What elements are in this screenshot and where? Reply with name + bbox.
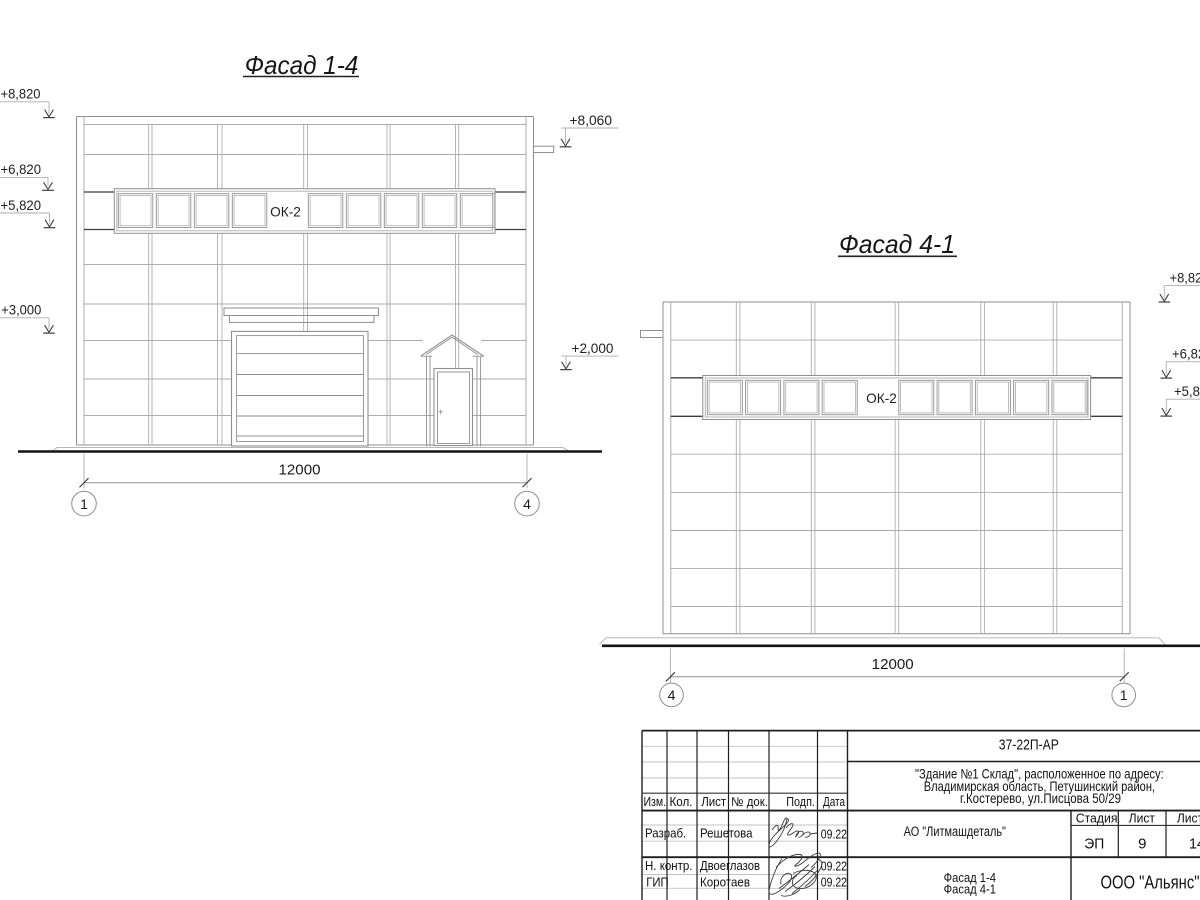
svg-text:Дата: Дата — [823, 794, 846, 809]
svg-text:Изм.: Изм. — [643, 794, 666, 809]
svg-text:1: 1 — [80, 496, 88, 512]
svg-text:4: 4 — [523, 496, 531, 512]
svg-text:ОК-2: ОК-2 — [270, 205, 301, 220]
svg-text:14: 14 — [1189, 835, 1200, 852]
svg-text:+3,000: +3,000 — [1, 302, 41, 318]
svg-text:Лист: Лист — [1129, 810, 1155, 825]
svg-text:1: 1 — [1120, 687, 1128, 703]
svg-text:№ док.: № док. — [731, 794, 768, 809]
svg-text:+8,820: +8,820 — [1, 86, 41, 102]
svg-text:Кол.: Кол. — [670, 794, 693, 809]
svg-text:ЭП: ЭП — [1084, 835, 1104, 852]
svg-text:Лист: Лист — [701, 794, 726, 809]
svg-text:АО "Литмашдеталь": АО "Литмашдеталь" — [904, 824, 1006, 839]
svg-text:09.22: 09.22 — [821, 875, 847, 890]
svg-text:Разраб.: Разраб. — [645, 826, 686, 841]
svg-text:Коротаев: Коротаев — [700, 875, 750, 890]
svg-text:9: 9 — [1138, 835, 1146, 852]
svg-text:12000: 12000 — [872, 657, 914, 673]
svg-text:Фасад 1-4: Фасад 1-4 — [245, 50, 359, 80]
svg-text:Решетова: Решетова — [700, 826, 753, 841]
svg-text:ООО "Альянс": ООО "Альянс" — [1101, 872, 1200, 892]
svg-text:+8,820: +8,820 — [1170, 269, 1200, 285]
svg-text:ОК-2: ОК-2 — [866, 391, 897, 406]
svg-text:Лист: Лист — [1177, 810, 1200, 825]
svg-text:Двоеглазов: Двоеглазов — [700, 858, 760, 873]
svg-text:+6,820: +6,820 — [1172, 346, 1200, 362]
svg-text:Фасад 4-1: Фасад 4-1 — [944, 882, 996, 897]
svg-text:37-22П-АР: 37-22П-АР — [999, 738, 1059, 754]
svg-text:09.22: 09.22 — [821, 859, 847, 874]
svg-text:+2,000: +2,000 — [572, 340, 614, 356]
svg-text:+6,820: +6,820 — [1, 161, 42, 177]
svg-text:Н. контр.: Н. контр. — [645, 858, 693, 873]
svg-text:+5,820: +5,820 — [1, 197, 42, 213]
svg-text:+8,060: +8,060 — [570, 112, 613, 128]
svg-text:ГИП: ГИП — [646, 875, 669, 890]
svg-text:4: 4 — [668, 687, 676, 703]
svg-text:Подп.: Подп. — [786, 794, 815, 809]
svg-text:Стадия: Стадия — [1076, 810, 1118, 825]
svg-text:Фасад 4-1: Фасад 4-1 — [839, 229, 955, 259]
svg-text:+5,820: +5,820 — [1174, 383, 1200, 399]
svg-text:09.22: 09.22 — [821, 826, 847, 841]
svg-text:12000: 12000 — [279, 463, 321, 479]
svg-text:г.Костерево, ул.Писцова 50/29: г.Костерево, ул.Писцова 50/29 — [960, 791, 1121, 806]
